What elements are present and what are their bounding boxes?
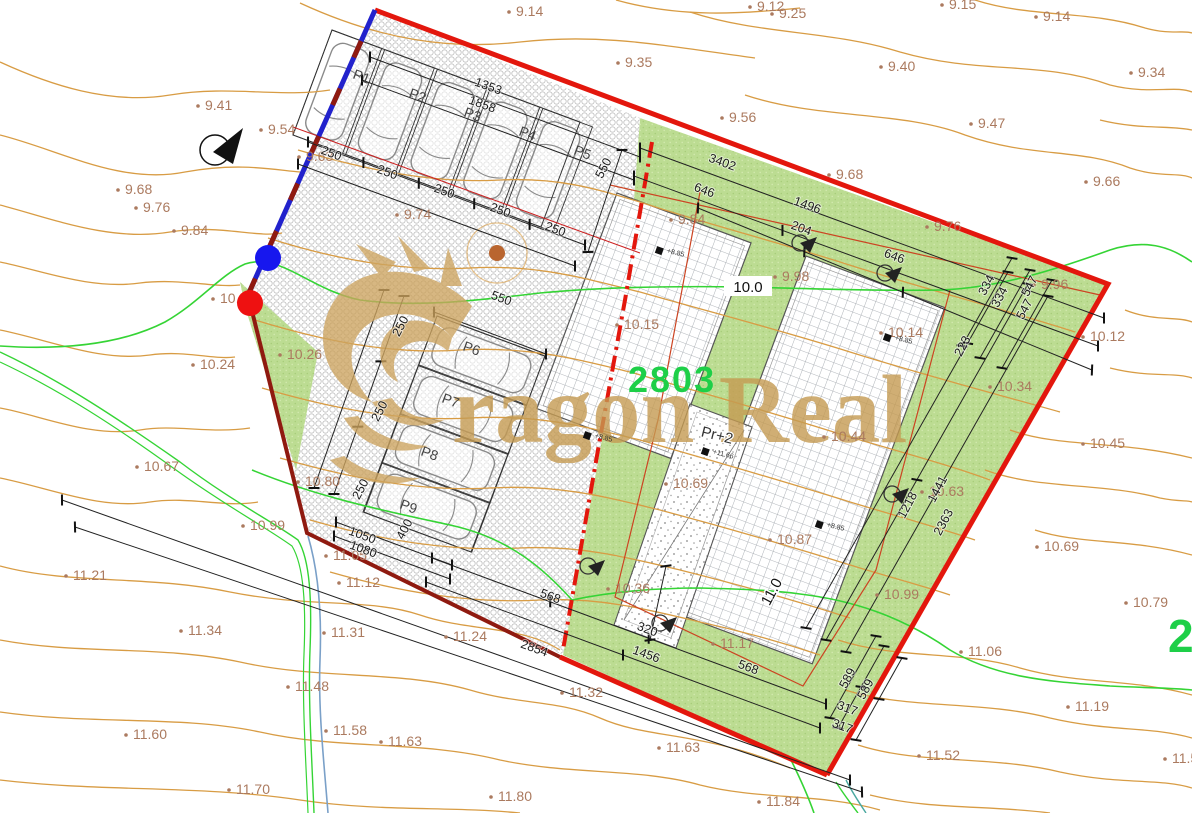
parcel-number: 2803 xyxy=(628,359,716,400)
contour-elevation-label: 10.69 xyxy=(1044,538,1079,554)
contour-label-dot xyxy=(172,229,176,233)
contour-elevation-label: 11.80 xyxy=(498,788,532,804)
contour-label-dot xyxy=(64,574,68,578)
contour-label-dot xyxy=(134,206,138,210)
contour-elevation-label: 10.45 xyxy=(1090,435,1125,451)
contour-elevation-label: 9.35 xyxy=(625,54,652,70)
contour-elevation-label: 11.70 xyxy=(236,781,270,797)
contour-elevation-label: 9.76 xyxy=(934,218,961,234)
contour-label-dot xyxy=(444,635,448,639)
contour-label-dot xyxy=(324,554,328,558)
contour-label-dot xyxy=(179,629,183,633)
contour-label-dot xyxy=(920,490,924,494)
contour-label-dot xyxy=(227,788,231,792)
contour-label-dot xyxy=(1034,15,1038,19)
contour-label-dot xyxy=(322,631,326,635)
adjacent-parcel-number-partial: 2 xyxy=(1168,610,1192,662)
contour-elevation-label: 9.47 xyxy=(978,115,1005,131)
level-10-text: 10.0 xyxy=(733,279,762,296)
contour-label-dot xyxy=(822,435,826,439)
contour-elevation-label: 10.69 xyxy=(673,475,708,491)
contour-label-dot xyxy=(615,323,619,327)
contour-label-dot xyxy=(324,729,328,733)
site-plan-drawing: ragon Real 9.129.159.149.259.149.359.409… xyxy=(0,0,1192,813)
contour-elevation-label: 9.41 xyxy=(205,97,232,113)
contour-label-dot xyxy=(917,754,921,758)
contour-label-dot xyxy=(1081,335,1085,339)
contour-elevation-label: 9.56 xyxy=(729,109,756,125)
contour-elevation-label: 11.48 xyxy=(295,678,329,694)
contour-elevation-label: 9.14 xyxy=(1043,8,1070,24)
contour-elevation-label: 11.63 xyxy=(666,739,700,755)
contour-elevation-label: 10.26 xyxy=(287,346,322,362)
contour-label-dot xyxy=(770,12,774,16)
contour-label-dot xyxy=(489,795,493,799)
contour-label-dot xyxy=(560,691,564,695)
contour-label-dot xyxy=(1084,180,1088,184)
contour-label-dot xyxy=(875,593,879,597)
contour-elevation-label: 10.12 xyxy=(1090,328,1125,344)
contour-label-dot xyxy=(296,480,300,484)
contour-elevation-label: 11.60 xyxy=(133,726,167,742)
contour-elevation-label: 9.54 xyxy=(268,121,295,137)
contour-elevation-label: 10.99 xyxy=(884,586,919,602)
contour-elevation-label: 9.25 xyxy=(779,5,806,21)
contour-label-dot xyxy=(879,65,883,69)
contour-label-dot xyxy=(720,116,724,120)
contour-elevation-label: 11.34 xyxy=(188,622,222,638)
contour-label-dot xyxy=(757,800,761,804)
contour-elevation-label: 10.79 xyxy=(1133,594,1168,610)
contour-elevation-label: 11.17 xyxy=(720,635,754,651)
contour-elevation-label: 9.68 xyxy=(836,166,863,182)
contour-label-dot xyxy=(925,225,929,229)
contour-label-dot xyxy=(959,650,963,654)
contour-label-dot xyxy=(1066,705,1070,709)
contour-label-dot xyxy=(606,587,610,591)
contour-elevation-label: 11.21 xyxy=(73,567,107,583)
contour-elevation-label: 10.87 xyxy=(777,531,812,547)
contour-elevation-label: 9.98 xyxy=(782,268,809,284)
contour-elevation-label: 11.52 xyxy=(1172,750,1192,766)
contour-label-dot xyxy=(337,581,341,585)
contour-elevation-label: 9.66 xyxy=(1093,173,1120,189)
contour-label-dot xyxy=(940,3,944,7)
contour-elevation-label: 11.32 xyxy=(569,684,603,700)
contour-label-dot xyxy=(664,482,668,486)
red-point-marker xyxy=(237,290,263,316)
contour-label-dot xyxy=(988,385,992,389)
level-label-10: 10.0 xyxy=(724,276,772,296)
contour-elevation-label: 10.80 xyxy=(305,473,340,489)
contour-label-dot xyxy=(196,104,200,108)
contour-elevation-label: 11.12 xyxy=(346,574,380,590)
contour-label-dot xyxy=(1035,545,1039,549)
contour-elevation-label: 9.15 xyxy=(949,0,976,12)
contour-label-dot xyxy=(191,363,195,367)
contour-label-dot xyxy=(241,524,245,528)
contour-label-dot xyxy=(827,173,831,177)
contour-elevation-label: 9.84 xyxy=(678,211,705,227)
contour-elevation-label: 11.84 xyxy=(766,793,800,809)
contour-label-dot xyxy=(286,685,290,689)
contour-elevation-label: 9.68 xyxy=(125,181,152,197)
contour-elevation-label: 11.52 xyxy=(926,747,960,763)
blue-point-marker xyxy=(255,245,281,271)
contour-elevation-label: 9.76 xyxy=(143,199,170,215)
contour-elevation-label: 9.34 xyxy=(1138,64,1165,80)
contour-elevation-label: 11.06 xyxy=(968,643,1002,659)
contour-label-dot xyxy=(969,122,973,126)
contour-label-dot xyxy=(395,213,399,217)
contour-label-dot xyxy=(1124,601,1128,605)
contour-elevation-label: 10.67 xyxy=(144,458,179,474)
contour-elevation-label: 11.24 xyxy=(453,628,487,644)
contour-label-dot xyxy=(135,465,139,469)
contour-elevation-label: 9.14 xyxy=(516,3,543,19)
contour-label-dot xyxy=(124,733,128,737)
contour-label-dot xyxy=(768,538,772,542)
contour-label-dot xyxy=(507,10,511,14)
contour-elevation-label: 10.36 xyxy=(615,580,650,596)
contour-label-dot xyxy=(657,746,661,750)
contour-label-dot xyxy=(297,155,301,159)
contour-elevation-label: 9.96 xyxy=(1041,276,1068,292)
contour-label-dot xyxy=(616,61,620,65)
site-plan-canvas: ragon Real 9.129.159.149.259.149.359.409… xyxy=(0,0,1192,813)
contour-label-dot xyxy=(773,275,777,279)
contour-elevation-label: 10.24 xyxy=(200,356,235,372)
contour-label-dot xyxy=(669,218,673,222)
contour-label-dot xyxy=(1163,757,1167,761)
contour-label-dot xyxy=(379,740,383,744)
contour-elevation-label: 10.15 xyxy=(624,316,659,332)
contour-elevation-label: 10.99 xyxy=(250,517,285,533)
contour-elevation-label: 11.19 xyxy=(1075,698,1109,714)
utility-node-dot xyxy=(489,245,505,261)
contour-label-dot xyxy=(278,353,282,357)
contour-elevation-label: 9.40 xyxy=(888,58,915,74)
contour-elevation-label: 10.34 xyxy=(997,378,1032,394)
contour-label-dot xyxy=(879,331,883,335)
contour-elevation-label: 9.84 xyxy=(181,222,208,238)
contour-label-dot xyxy=(1081,442,1085,446)
contour-elevation-label: 11.63 xyxy=(388,733,422,749)
contour-label-dot xyxy=(211,297,215,301)
contour-label-dot xyxy=(116,188,120,192)
contour-label-dot xyxy=(748,5,752,9)
contour-elevation-label: 9.74 xyxy=(404,206,431,222)
contour-elevation-label: 11.58 xyxy=(333,722,367,738)
contour-label-dot xyxy=(711,642,715,646)
contour-label-dot xyxy=(259,128,263,132)
contour-label-dot xyxy=(1129,71,1133,75)
contour-elevation-label: 10.44 xyxy=(831,428,866,444)
contour-elevation-label: 11.31 xyxy=(331,624,365,640)
